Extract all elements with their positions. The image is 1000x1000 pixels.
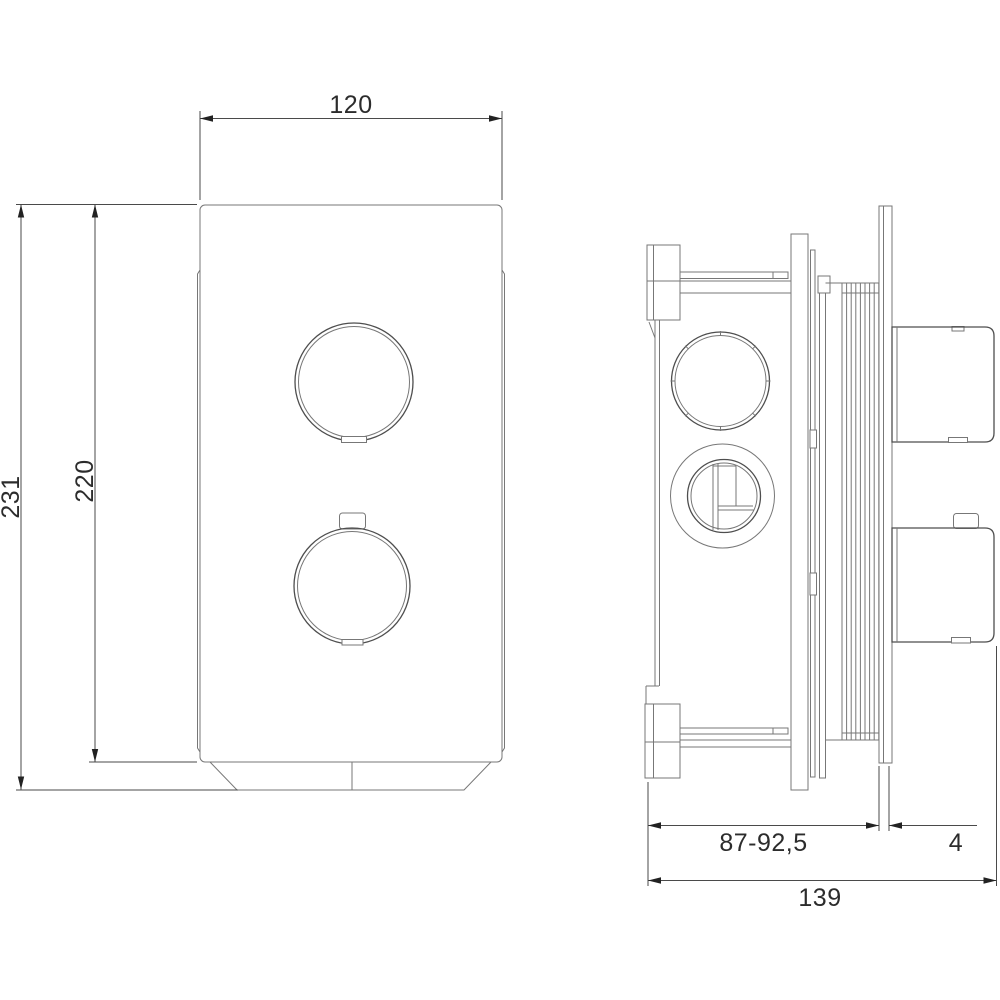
dim-220-arrow-bottom — [92, 749, 98, 762]
dim-87-arrow-left — [648, 822, 661, 828]
dim-231-arrow-bottom — [18, 777, 24, 790]
top-rail-2 — [680, 281, 791, 293]
bottom-knob-outer-circle — [294, 528, 410, 644]
front-base-trapezoid — [210, 762, 491, 790]
side-top-knob — [892, 327, 994, 443]
dim-120-extension-lines — [200, 111, 502, 200]
top-knob-outer-circle — [295, 323, 413, 441]
cartridge-strip-2-cap — [818, 276, 830, 293]
top-knob-inner-circle — [299, 327, 410, 438]
dim-4-label: 4 — [949, 829, 963, 857]
bottom-bracket-outline — [645, 704, 680, 778]
drawing-canvas: 120 231 220 87-92,5 4 139 — [0, 0, 1000, 1000]
cartridge-strip-1 — [811, 250, 816, 777]
side-top-knob-bottom-notch — [949, 438, 968, 443]
bottom-knob-bottom-notch — [342, 640, 363, 646]
dim-front-heights: 231 220 — [0, 205, 238, 791]
bottom-rail-1 — [680, 728, 788, 734]
dim-120-arrow-left — [200, 115, 213, 121]
side-screw-rails-bottom — [680, 728, 791, 747]
bottom-bracket-detail — [645, 704, 680, 778]
body-left-face — [655, 320, 660, 686]
top-rail-1 — [680, 272, 788, 279]
valve-port-inner — [691, 463, 757, 529]
top-knob-bottom-notch — [342, 437, 367, 443]
front-top-knob — [295, 323, 413, 443]
side-top-bracket — [647, 245, 680, 320]
top-bracket-detail — [647, 245, 680, 320]
strip-clip-lower — [810, 573, 817, 595]
dim-231-label: 231 — [0, 475, 25, 518]
dim-220-arrow-top — [92, 205, 98, 218]
wall-plate — [879, 206, 892, 763]
side-bottom-knob — [892, 514, 994, 644]
dim-139-label: 139 — [798, 884, 841, 912]
side-screw-rails-top — [680, 272, 791, 293]
cartridge-sleeve — [826, 283, 843, 740]
side-valve-body — [646, 320, 660, 704]
front-plate-outline — [200, 205, 502, 762]
front-plate-side-lip — [198, 270, 505, 752]
cartridge-ribs — [842, 283, 879, 740]
dim-depth-extension-lines — [648, 646, 997, 886]
dim-139-arrow-left — [648, 877, 661, 883]
side-bottom-knob-bottom-notch — [952, 638, 971, 644]
bottom-rail-2 — [680, 740, 791, 747]
dim-side-depths: 87-92,5 4 139 — [648, 646, 997, 912]
dim-220-label: 220 — [71, 459, 99, 502]
front-bottom-knob — [294, 513, 410, 645]
side-valve-circle-top — [671, 331, 771, 431]
front-view — [198, 205, 505, 790]
side-top-knob-outline — [892, 327, 994, 442]
body-top-chamfer — [649, 322, 655, 338]
mounting-post — [791, 234, 808, 790]
bottom-knob-inner-circle — [298, 532, 407, 641]
dim-front-width: 120 — [200, 91, 502, 200]
side-bottom-bracket — [645, 704, 680, 778]
side-bottom-knob-tab — [954, 514, 979, 529]
body-bottom-step — [646, 686, 659, 704]
top-bracket-outline — [647, 245, 680, 320]
side-valve-circle-bottom — [671, 444, 775, 548]
strip-clip-upper — [810, 430, 817, 448]
dim-4-arrow — [889, 822, 902, 828]
valve-ring-ticks — [671, 331, 771, 431]
dim-231-arrow-top — [18, 205, 24, 218]
side-bottom-knob-outline — [892, 528, 994, 642]
dim-120-arrow-right — [489, 115, 502, 121]
rib-lines — [842, 283, 879, 740]
dim-139-arrow-right — [984, 877, 997, 883]
technical-drawing: 120 231 220 87-92,5 4 139 — [0, 0, 1000, 1000]
dim-87-label: 87-92,5 — [719, 829, 807, 857]
wall-plate-outline — [879, 206, 892, 763]
valve-port-mid — [688, 460, 761, 533]
dim-height-extension-lines — [16, 205, 238, 791]
dim-120-label: 120 — [329, 91, 372, 119]
bottom-knob-top-tab — [340, 513, 366, 529]
cartridge-strip-2 — [820, 293, 826, 778]
side-view — [645, 206, 994, 790]
dim-87-arrow-right — [866, 822, 879, 828]
